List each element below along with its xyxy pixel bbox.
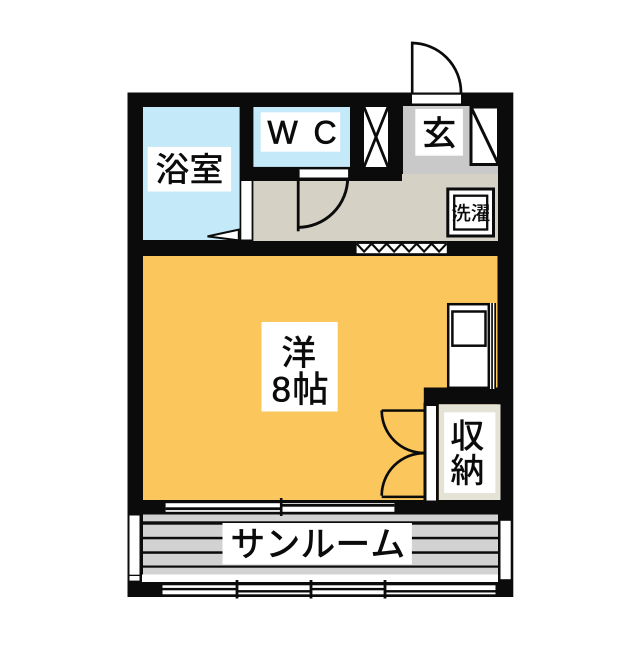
svg-text:W: W [268, 115, 299, 151]
svg-text:C: C [314, 115, 337, 151]
svg-text:8: 8 [272, 370, 291, 409]
